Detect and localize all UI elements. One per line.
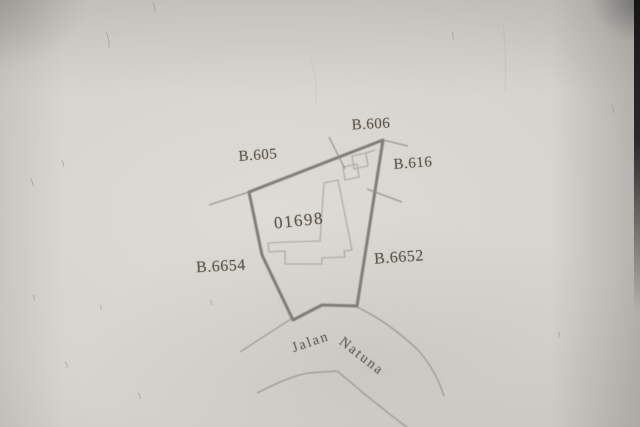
paper-speck — [210, 300, 211, 305]
road-edge-lower — [257, 371, 407, 427]
marker-label-b616: B.616 — [393, 154, 433, 174]
paper-speck — [62, 160, 63, 167]
paper-speck — [452, 32, 453, 40]
paper-speck — [65, 362, 67, 368]
paper-speck — [153, 2, 155, 12]
photo-vignette-top-right — [570, 0, 640, 60]
photo-vignette-top-left — [0, 0, 120, 90]
boundary-extension-top — [383, 140, 408, 146]
paper-speck — [33, 295, 34, 301]
paper-speck — [558, 332, 559, 337]
paper-speck — [138, 393, 140, 399]
building-step-square-2 — [352, 153, 368, 169]
boundary-extension-left — [209, 192, 249, 205]
paper-crease — [310, 58, 316, 104]
paper-speck — [30, 178, 33, 186]
paper-crease — [503, 25, 506, 93]
photo-edge-shadow — [634, 0, 640, 312]
road-edge-upper-right — [357, 307, 444, 396]
survey-tick-b606 — [329, 137, 345, 169]
marker-label-b606: B.606 — [351, 115, 391, 134]
marker-label-b6654: B.6654 — [196, 257, 247, 278]
building-step-connector — [366, 150, 375, 153]
photographed-survey-sketch: B.605 B.606 B.616 B.6654 B.6652 01698 Ja… — [0, 0, 640, 427]
paper-speck — [612, 105, 613, 113]
building-step-square-1 — [343, 164, 359, 180]
road-edge-upper-left — [240, 319, 291, 352]
marker-label-b6652: B.6652 — [374, 247, 425, 268]
marker-label-b605: B.605 — [238, 146, 278, 166]
paper-speck — [100, 305, 101, 310]
